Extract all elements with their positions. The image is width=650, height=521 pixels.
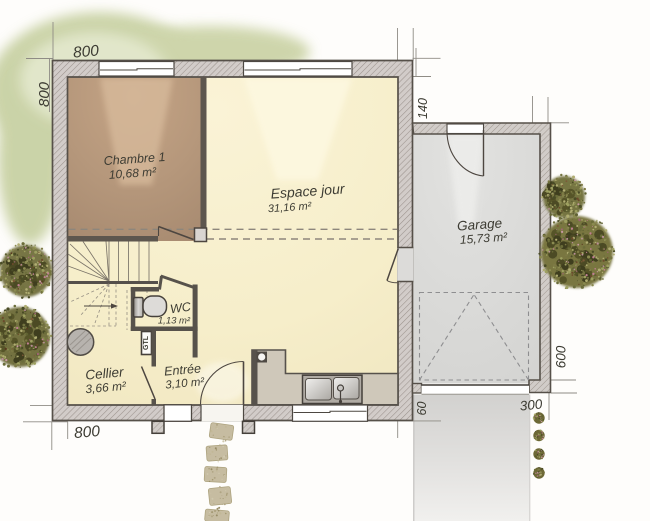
svg-text:60: 60 bbox=[415, 402, 429, 416]
svg-text:1,13 m²: 1,13 m² bbox=[158, 316, 191, 327]
svg-text:800: 800 bbox=[73, 423, 101, 442]
svg-text:800: 800 bbox=[72, 42, 100, 61]
svg-text:300: 300 bbox=[519, 396, 543, 413]
svg-text:GTL: GTL bbox=[143, 335, 150, 350]
svg-text:600: 600 bbox=[554, 345, 569, 368]
svg-text:140: 140 bbox=[416, 98, 430, 119]
svg-text:800: 800 bbox=[36, 81, 53, 107]
